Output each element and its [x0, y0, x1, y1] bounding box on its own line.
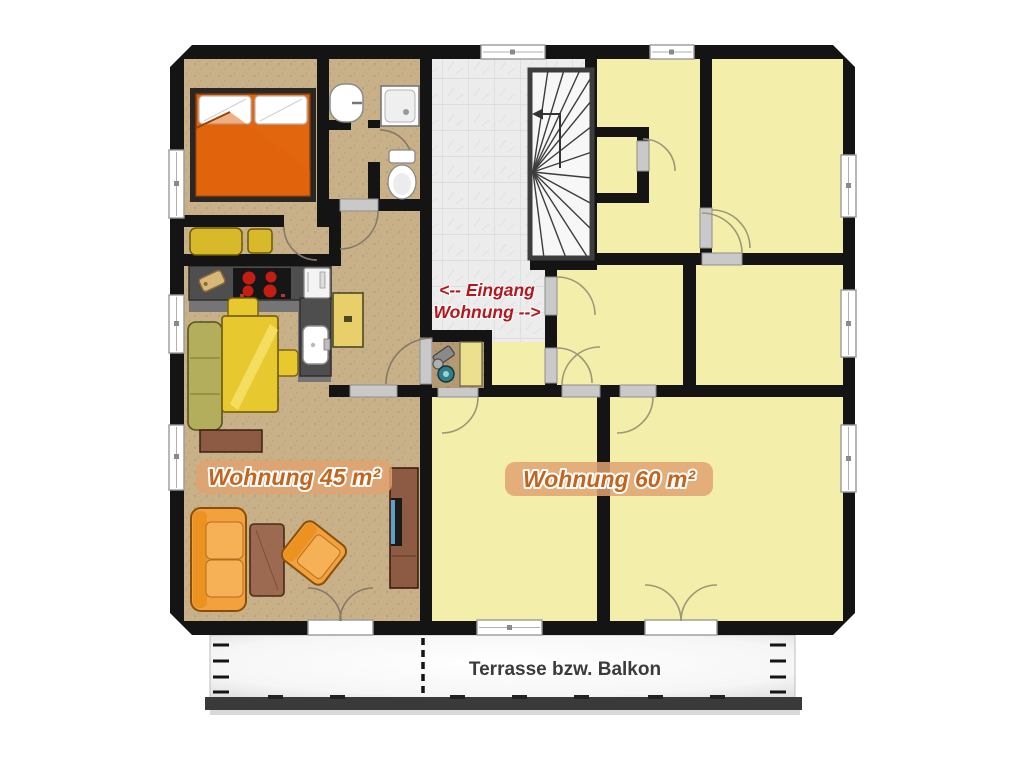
- door-room-b-middle: [702, 253, 742, 265]
- window: [841, 290, 856, 357]
- terrace-label: Terrasse bzw. Balkon: [469, 659, 661, 680]
- window: [841, 155, 856, 217]
- apartment-60-label-text: Wohnung 60 m²: [523, 466, 696, 492]
- door-middle-bottomleft: [562, 385, 600, 397]
- sideboard: [200, 430, 262, 452]
- window: [481, 45, 545, 59]
- door-apt45-entrance: [420, 338, 432, 384]
- chair-small: [248, 229, 272, 253]
- staircase: [530, 70, 592, 258]
- door-bathroom: [340, 199, 378, 211]
- kitchen-sink: [303, 326, 330, 364]
- window: [169, 425, 184, 490]
- closet-cabinet: [460, 342, 482, 386]
- bedroom-furniture: [190, 88, 316, 202]
- double-bed: [190, 88, 316, 202]
- stove: [233, 268, 291, 299]
- dining-bench: [188, 322, 222, 430]
- tv-board: [390, 468, 418, 588]
- door-apt60-vestibule: [545, 348, 557, 383]
- door-apt60-entrance: [545, 277, 557, 315]
- terrace-shadow: [210, 710, 800, 715]
- apartment-60-label: Wohnung 60 m²: [505, 462, 713, 496]
- terrace: Terrasse bzw. Balkon: [205, 635, 802, 715]
- toilet: [388, 150, 416, 199]
- window: [841, 425, 856, 492]
- door-apt60-wc: [637, 141, 649, 171]
- floor-plan-page: Terrasse bzw. Balkon: [0, 0, 1024, 768]
- apartment-45-label: Wohnung 45 m²: [196, 460, 392, 494]
- fridge: [304, 268, 330, 298]
- window: [477, 620, 542, 635]
- bench-small: [190, 228, 242, 255]
- hallway-wardrobe: [333, 293, 363, 347]
- window: [650, 45, 694, 59]
- passage-hall-living: [350, 385, 397, 397]
- window: [169, 150, 184, 218]
- vestibule-closet: [432, 342, 484, 388]
- apartment-45-label-text: Wohnung 45 m²: [208, 464, 381, 490]
- window: [169, 295, 184, 353]
- dining-nook: [190, 228, 272, 255]
- entrance-label-line1: <-- Eingang: [439, 280, 535, 300]
- floor-plan-canvas: Terrasse bzw. Balkon: [0, 0, 1024, 768]
- door-middle-bottomright: [620, 385, 656, 397]
- sofa: [191, 508, 246, 611]
- dining-chair-right: [276, 350, 298, 376]
- tv-screen: [391, 500, 395, 544]
- entrance-label-line2: Wohnung -->: [433, 302, 540, 322]
- washbasin: [330, 84, 363, 122]
- shower: [381, 86, 419, 126]
